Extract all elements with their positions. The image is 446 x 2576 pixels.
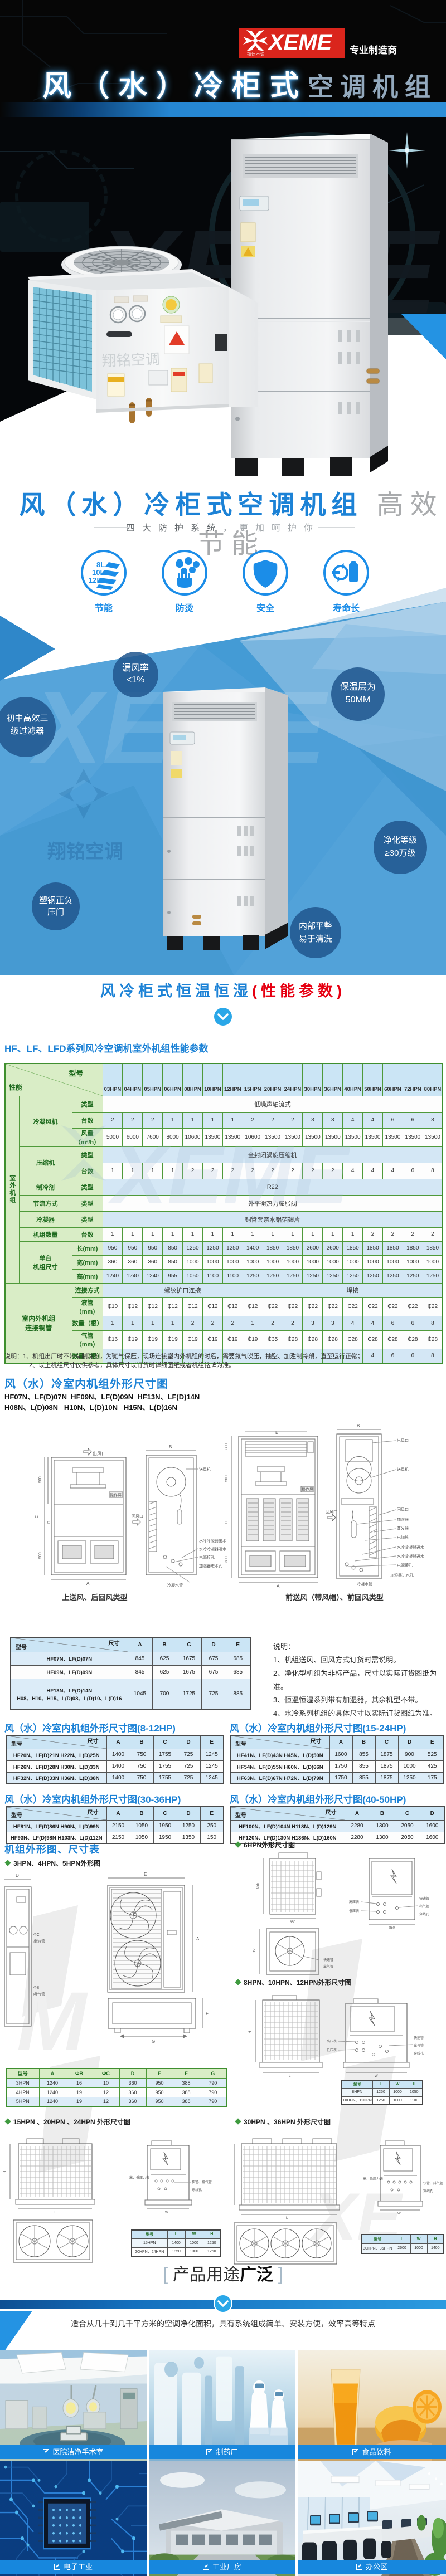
svg-text:8L: 8L [96,560,105,569]
svg-text:F: F [206,2011,209,2016]
svg-text:955: 955 [256,1882,260,1889]
svg-text:850: 850 [389,1926,395,1930]
svg-text:水冷冷凝器进水: 水冷冷凝器进水 [397,1545,424,1550]
svg-text:水冷冷凝器出水: 水冷冷凝器出水 [199,1538,226,1543]
svg-text:出气管: 出气管 [414,2043,424,2048]
svg-text:H: H [3,2171,7,2173]
svg-text:穿线孔: 穿线孔 [419,1912,429,1916]
svg-text:W: W [375,2075,378,2078]
svg-text:W: W [165,2211,168,2214]
svg-text:出气管: 出气管 [323,1964,333,1969]
svg-text:500: 500 [225,1475,229,1482]
svg-text:850: 850 [290,1921,296,1924]
svg-text:吸气管: 吸气管 [33,1992,45,1997]
svg-text:加湿器: 加湿器 [397,1517,409,1522]
svg-text:冷凝水管: 冷凝水管 [357,1582,372,1587]
svg-text:C: C [35,1515,39,1518]
svg-text:电加热: 电加热 [397,1535,409,1540]
svg-text:E: E [144,1872,147,1877]
svg-text:D: D [16,1873,19,1878]
svg-text:850: 850 [253,1947,256,1953]
svg-text:水冷冷凝器进水: 水冷冷凝器进水 [397,1554,424,1559]
svg-text:加湿器进水孔: 加湿器进水孔 [390,1573,414,1578]
svg-text:快管、排气管: 快管、排气管 [192,2180,212,2184]
svg-text:快管、排气管: 快管、排气管 [423,2181,443,2185]
svg-text:高压表: 高压表 [349,1900,359,1904]
svg-text:300: 300 [225,1443,229,1450]
svg-text:出风口: 出风口 [397,1438,409,1443]
svg-text:翔铭空调: 翔铭空调 [47,841,123,862]
svg-text:H: H [231,2173,232,2175]
svg-text:300: 300 [225,1556,229,1563]
svg-text:快速管: 快速管 [323,1958,333,1962]
svg-text:D: D [47,1521,51,1524]
svg-text:操作屏: 操作屏 [110,1492,122,1497]
svg-text:A: A [277,1584,280,1589]
svg-text:电源接孔: 电源接孔 [397,1563,413,1568]
svg-text:A: A [196,1936,200,1941]
svg-text:回风口: 回风口 [132,1514,143,1519]
svg-text:A: A [86,1581,90,1586]
svg-text:D: D [225,1521,229,1524]
svg-text:翔铭空调: 翔铭空调 [101,350,160,369]
svg-text:B: B [169,1445,172,1450]
svg-text:L: L [289,2075,291,2078]
svg-text:快速管: 快速管 [419,1896,429,1901]
svg-text:出液管: 出液管 [33,1939,45,1944]
svg-text:B: B [357,1423,360,1428]
svg-text:回风口: 回风口 [326,1510,337,1514]
svg-text:操作屏: 操作屏 [302,1487,313,1492]
svg-text:500: 500 [38,1476,42,1483]
svg-text:回风口: 回风口 [397,1507,409,1512]
svg-text:出风口: 出风口 [93,1451,106,1456]
svg-text:水冷冷凝器进水: 水冷冷凝器进水 [199,1546,226,1552]
svg-text:穿线孔: 穿线孔 [423,2189,433,2193]
svg-text:L: L [54,2211,56,2214]
svg-text:穿线孔: 穿线孔 [192,2188,202,2192]
svg-text:加湿器进水孔: 加湿器进水孔 [199,1563,222,1568]
svg-text:低压表: 低压表 [349,1909,359,1913]
svg-text:高压表: 高压表 [327,2039,337,2043]
svg-text:H: H [249,2031,252,2033]
svg-text:电源接孔: 电源接孔 [199,1555,215,1560]
svg-text:穿线孔: 穿线孔 [414,2051,424,2056]
svg-text:送风机: 送风机 [199,1467,211,1472]
svg-text:500: 500 [38,1552,42,1559]
svg-text:快速管: 快速管 [414,2036,424,2040]
svg-text:E: E [275,1430,278,1435]
svg-text:送风机: 送风机 [397,1467,409,1472]
svg-text:出气管: 出气管 [419,1904,429,1909]
svg-text:G: G [152,2039,155,2044]
svg-text:低压表: 低压表 [327,2048,337,2052]
svg-text:高、低压力表: 高、低压力表 [129,2175,149,2180]
svg-text:W: W [397,2212,401,2216]
svg-text:蒸发器: 蒸发器 [397,1526,409,1531]
svg-text:L: L [286,2217,288,2220]
svg-text:ΦB: ΦB [33,1986,40,1990]
svg-text:ΦC: ΦC [33,1933,40,1937]
svg-text:高、低压力表: 高、低压力表 [363,2177,383,2181]
svg-text:冷凝水管: 冷凝水管 [167,1583,183,1588]
